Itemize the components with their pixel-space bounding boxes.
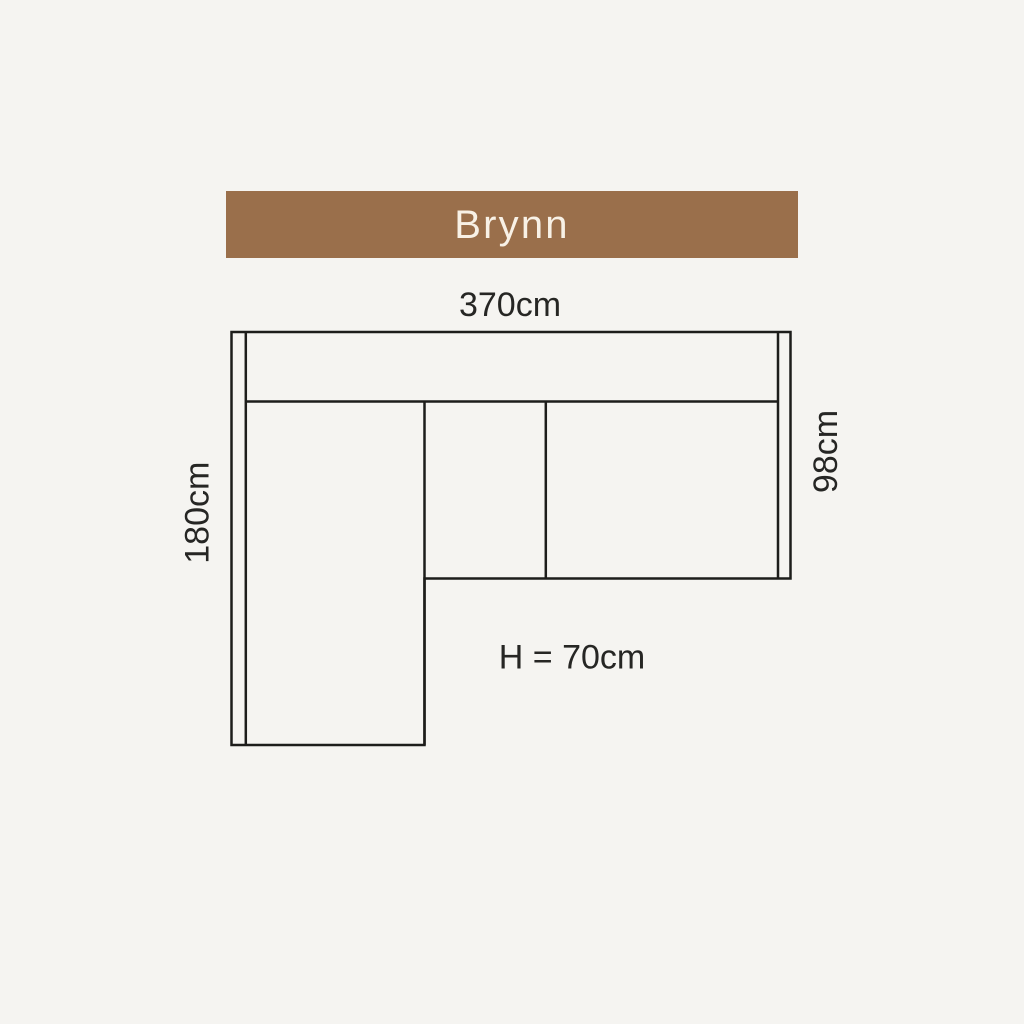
svg-text:H = 70cm: H = 70cm (499, 639, 645, 677)
svg-text:180cm: 180cm (179, 462, 217, 564)
svg-text:98cm: 98cm (807, 410, 845, 493)
svg-text:370cm: 370cm (459, 286, 561, 324)
svg-text:Brynn: Brynn (454, 203, 570, 247)
